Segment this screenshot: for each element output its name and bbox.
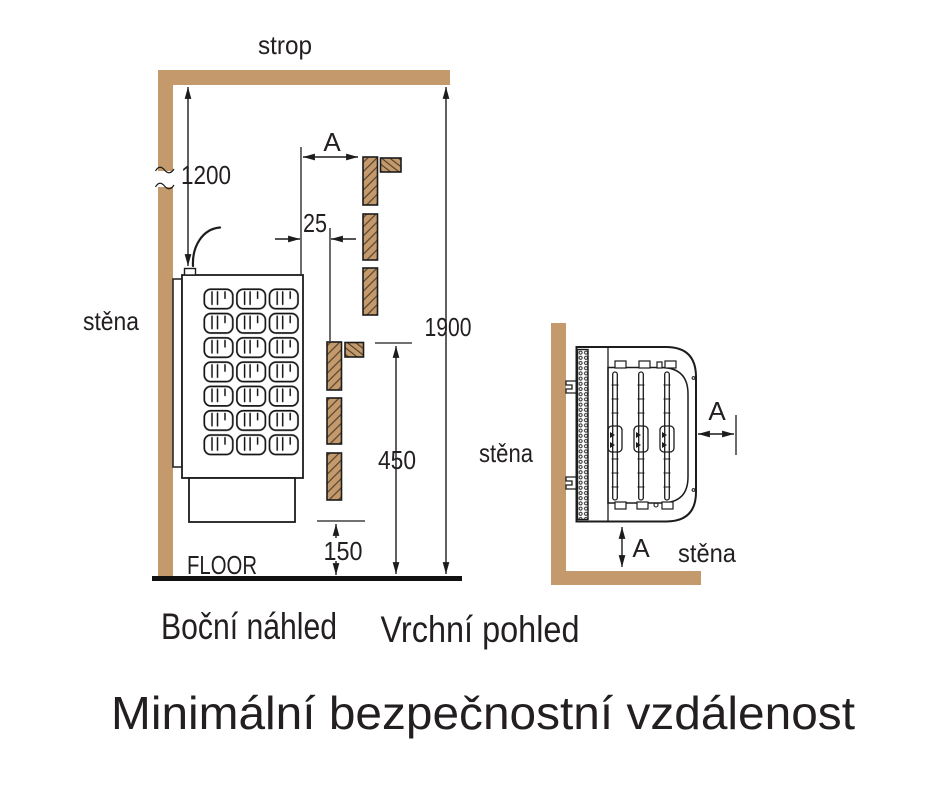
dim-1200: 1200 bbox=[181, 87, 231, 266]
heater-top bbox=[566, 347, 696, 522]
board-end bbox=[381, 158, 402, 172]
mounting-bracket bbox=[566, 477, 576, 489]
dim-25-value: 25 bbox=[303, 208, 327, 238]
power-cable-icon bbox=[193, 228, 220, 267]
board bbox=[363, 214, 378, 260]
terminal-tab bbox=[657, 362, 662, 368]
mounting-bracket bbox=[566, 381, 576, 393]
protective-boards-lower bbox=[327, 342, 364, 500]
top-view-wall-horizontal bbox=[551, 571, 701, 585]
wall-label-side-view: stěna bbox=[83, 306, 139, 336]
wall-label-top-view-left: stěna bbox=[479, 438, 533, 468]
board-end bbox=[345, 343, 364, 358]
wall-beam-lower bbox=[158, 187, 173, 576]
dim-150: 150 bbox=[317, 521, 365, 575]
board bbox=[327, 398, 342, 444]
dim-450-value: 450 bbox=[378, 445, 416, 475]
protective-boards-upper bbox=[363, 157, 401, 315]
dim-1200-value: 1200 bbox=[181, 160, 231, 190]
dim-a-side: A bbox=[698, 396, 736, 455]
heater-mesh-grille bbox=[578, 350, 589, 520]
floor-label: FLOOR bbox=[187, 550, 257, 580]
safety-distance-diagram: 1200 A 25 1900 450 150 bbox=[0, 0, 934, 785]
top-view-wall-vertical bbox=[551, 323, 566, 585]
dim-a-side-value: A bbox=[708, 396, 726, 426]
board bbox=[363, 157, 378, 205]
dim-1900: 1900 bbox=[425, 87, 472, 574]
diagram-svg: 1200 A 25 1900 450 150 bbox=[0, 0, 934, 785]
heater-stones-grille bbox=[203, 287, 301, 457]
side-view-caption: Boční náhled bbox=[161, 606, 337, 647]
heater-top-tab bbox=[185, 269, 196, 276]
heater-back-panel bbox=[173, 279, 182, 467]
top-view-caption: Vrchní pohled bbox=[381, 609, 580, 650]
heater-side bbox=[173, 228, 303, 523]
board bbox=[363, 268, 378, 315]
heater-base bbox=[189, 478, 295, 522]
ceiling-beam bbox=[158, 70, 450, 85]
terminal-tab bbox=[665, 361, 676, 368]
terminal-tab bbox=[662, 502, 673, 509]
dim-150-value: 150 bbox=[324, 536, 363, 566]
dim-a-back-value: A bbox=[632, 533, 650, 563]
terminal-tab bbox=[615, 502, 626, 509]
board bbox=[327, 342, 342, 390]
terminal-tab bbox=[615, 361, 626, 368]
heating-elements bbox=[608, 372, 674, 500]
terminal-tab bbox=[639, 361, 650, 368]
dim-a-front-value: A bbox=[323, 127, 341, 157]
dim-1900-value: 1900 bbox=[425, 312, 472, 342]
side-view: 1200 A 25 1900 450 150 bbox=[83, 30, 472, 581]
wall-beam-upper bbox=[158, 70, 173, 171]
page-title: Minimální bezpečnostní vzdálenost bbox=[111, 687, 855, 739]
terminal-tab bbox=[637, 502, 648, 509]
wall-label-top-view-bottom: stěna bbox=[678, 538, 736, 568]
top-view: A A stěna stěna bbox=[479, 323, 736, 585]
dim-a-back: A bbox=[622, 527, 650, 567]
dim-450: 450 bbox=[375, 343, 416, 574]
board bbox=[327, 453, 342, 500]
ceiling-label: strop bbox=[258, 30, 312, 60]
